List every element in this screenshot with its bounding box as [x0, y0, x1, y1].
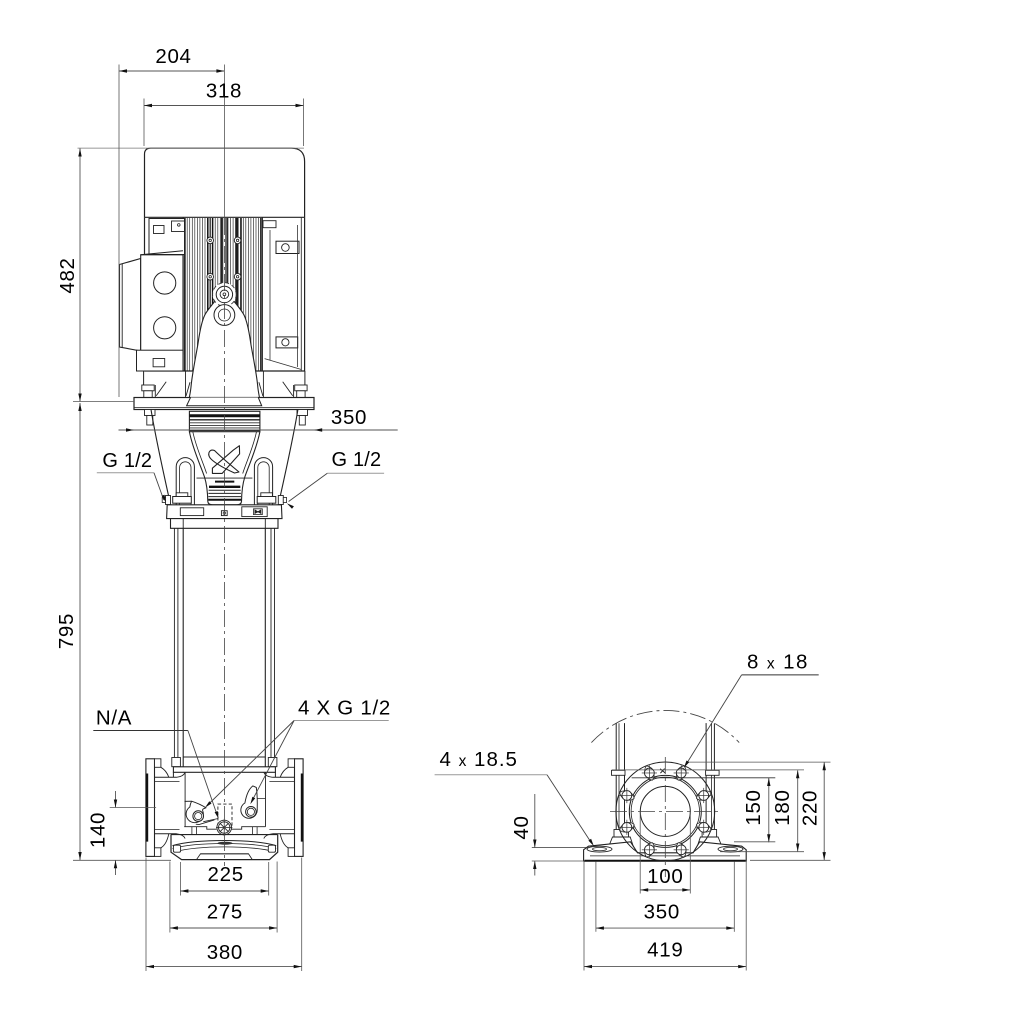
- svg-text:350: 350: [331, 406, 367, 429]
- svg-text:225: 225: [208, 863, 244, 886]
- svg-text:275: 275: [207, 901, 243, 924]
- svg-text:380: 380: [207, 941, 243, 964]
- svg-text:350: 350: [644, 900, 680, 923]
- svg-text:318: 318: [206, 80, 242, 103]
- svg-text:795: 795: [55, 613, 78, 649]
- svg-text:4 X G 1/2: 4 X G 1/2: [298, 697, 391, 720]
- svg-text:N/A: N/A: [96, 707, 132, 730]
- svg-text:482: 482: [56, 257, 79, 293]
- svg-text:140: 140: [87, 812, 110, 848]
- svg-text:100: 100: [647, 865, 683, 888]
- svg-text:180: 180: [771, 789, 794, 825]
- svg-text:150: 150: [742, 789, 765, 825]
- svg-text:419: 419: [647, 939, 683, 962]
- svg-text:204: 204: [155, 45, 191, 68]
- svg-text:G 1/2: G 1/2: [102, 450, 152, 472]
- svg-text:40: 40: [510, 815, 533, 839]
- svg-text:8 x 18: 8 x 18: [747, 651, 809, 674]
- svg-text:G 1/2: G 1/2: [331, 449, 381, 471]
- svg-text:220: 220: [799, 790, 822, 826]
- svg-text:4 x 18.5: 4 x 18.5: [440, 748, 518, 771]
